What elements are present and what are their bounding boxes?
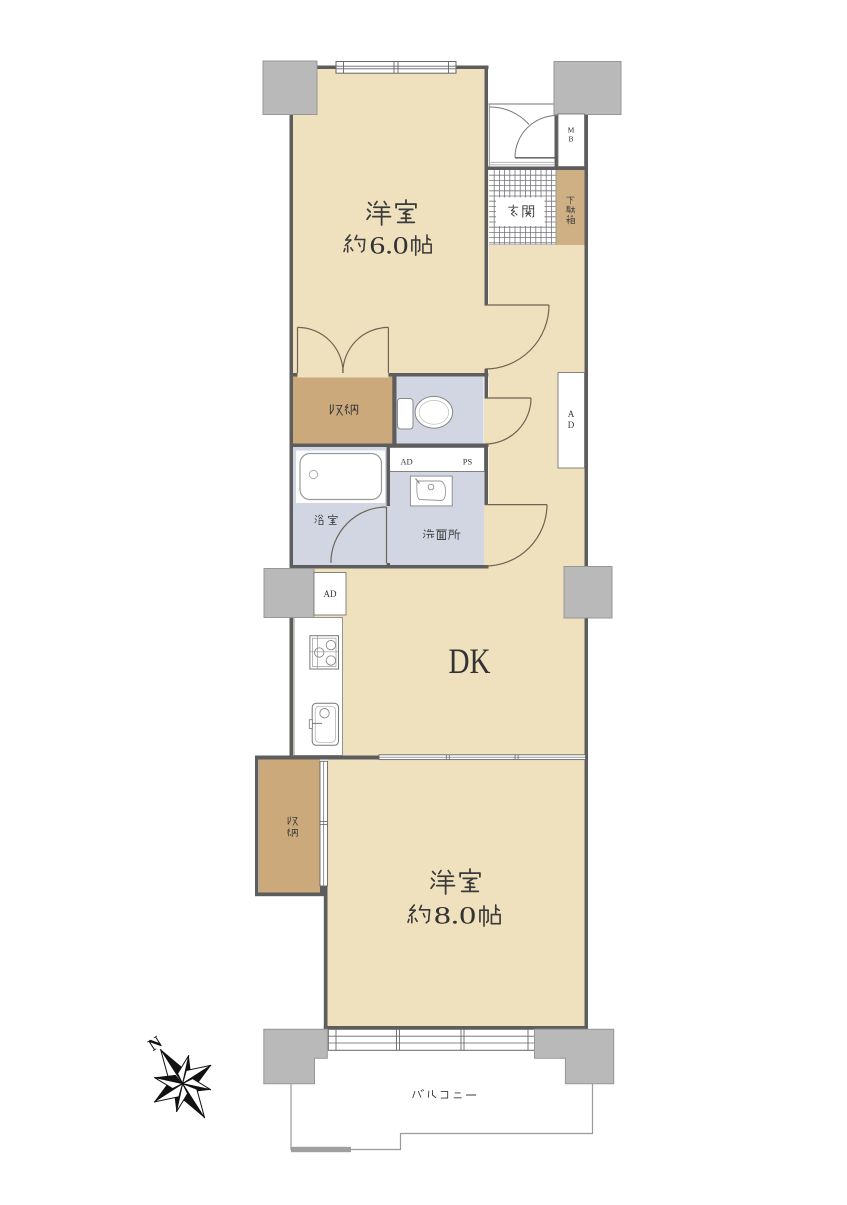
svg-text:DK: DK <box>449 641 491 681</box>
svg-text:A: A <box>568 409 575 419</box>
svg-text:PS: PS <box>463 457 473 467</box>
svg-text:6.0: 6.0 <box>370 233 409 260</box>
svg-text:AD: AD <box>400 457 412 467</box>
svg-text:AD: AD <box>324 589 337 599</box>
svg-text:D: D <box>568 420 575 430</box>
svg-text:8.0: 8.0 <box>434 903 476 930</box>
svg-text:B: B <box>568 135 573 144</box>
svg-text:M: M <box>568 126 575 135</box>
